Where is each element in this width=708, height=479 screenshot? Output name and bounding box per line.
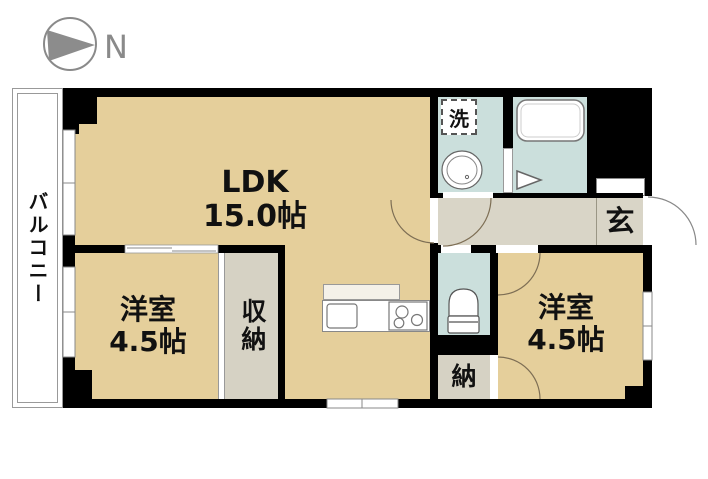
closet-label: 収納 <box>225 253 278 399</box>
kitchen-counter <box>322 300 430 332</box>
washroom-doorway <box>443 192 493 198</box>
north-label: N <box>104 28 128 66</box>
pillar <box>625 386 652 408</box>
wall <box>75 245 125 253</box>
pillar <box>63 370 92 408</box>
entrance-step-line <box>596 198 597 245</box>
room-bathroom <box>513 97 587 193</box>
pillar <box>63 88 97 124</box>
bathroom-door <box>503 148 513 193</box>
western-right-size: 4.5帖 <box>527 324 605 356</box>
storage-label: 納 <box>438 355 490 399</box>
entrance-label: 玄 <box>598 201 642 243</box>
laundry-label: 洗 <box>449 103 469 132</box>
western-right-label: 洋室 <box>538 292 594 324</box>
wall <box>438 335 490 355</box>
balcony: バルコニー <box>12 88 63 408</box>
wall <box>538 245 643 253</box>
western-left-size: 4.5帖 <box>109 326 187 358</box>
wall <box>278 253 285 399</box>
wall <box>430 97 438 198</box>
western-right-label-group: 洋室 4.5帖 <box>486 286 646 362</box>
washing-machine-box: 洗 <box>441 99 477 135</box>
wall <box>471 245 496 253</box>
ldk-label-group: LDK 15.0帖 <box>155 162 355 238</box>
wall <box>493 193 643 198</box>
kitchen-shelf <box>323 284 400 300</box>
wall <box>63 399 652 408</box>
wall <box>218 245 285 253</box>
wall <box>503 97 513 148</box>
ldk-label: LDK <box>221 166 288 201</box>
room-toilet <box>438 253 490 335</box>
pillar <box>63 124 79 134</box>
wall <box>643 245 652 292</box>
entrance-door-arc <box>648 197 696 245</box>
north-compass: N <box>40 14 160 78</box>
floor-plan: N バルコニー <box>0 0 708 479</box>
wall <box>430 245 441 253</box>
wall <box>430 243 438 399</box>
ldk-size: 15.0帖 <box>203 200 307 235</box>
wall <box>63 88 652 97</box>
western-left-label: 洋室 <box>120 294 176 326</box>
wall <box>430 193 443 198</box>
balcony-label: バルコニー <box>23 191 52 306</box>
western-left-label-group: 洋室 4.5帖 <box>68 288 228 364</box>
